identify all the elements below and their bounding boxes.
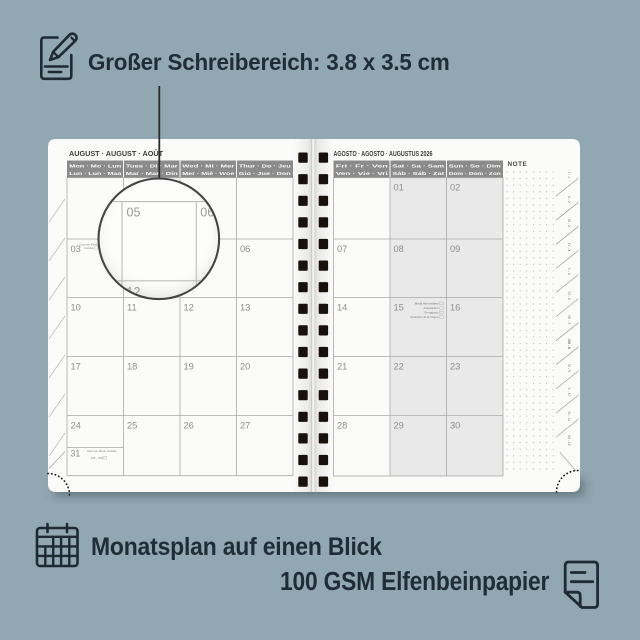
svg-text:GB - NIR: GB - NIR — [91, 456, 104, 460]
svg-text:Sáb · Sáb · Zat: Sáb · Sáb · Zat — [392, 171, 445, 176]
svg-text:III - 3: III - 3 — [567, 219, 571, 227]
svg-text:NOTE: NOTE — [508, 161, 528, 168]
svg-text:28: 28 — [337, 421, 347, 431]
svg-text:VI - 6: VI - 6 — [567, 292, 571, 300]
svg-text:Thur · Do · Jeu: Thur · Do · Jeu — [239, 164, 292, 169]
svg-text:Sat · Sa · Sam: Sat · Sa · Sam — [392, 164, 445, 169]
svg-text:VII - 7: VII - 7 — [567, 315, 571, 324]
svg-text:IX - 9: IX - 9 — [567, 364, 571, 372]
svg-text:IV - 4: IV - 4 — [567, 243, 571, 251]
svg-text:13: 13 — [240, 303, 250, 313]
svg-text:Ferragosto: Ferragosto — [425, 311, 439, 315]
svg-text:Mer · Mié · Woe: Mer · Mié · Woe — [182, 171, 235, 176]
svg-text:Mar · Mar · Din: Mar · Mar · Din — [126, 171, 179, 176]
svg-text:10: 10 — [71, 303, 81, 313]
svg-text:25: 25 — [127, 421, 137, 431]
svg-text:Mariä Himmelfahrt: Mariä Himmelfahrt — [415, 301, 439, 305]
svg-text:23: 23 — [450, 362, 460, 372]
svg-text:14: 14 — [337, 303, 347, 313]
svg-text:Wed · Mi · Mer: Wed · Mi · Mer — [182, 164, 235, 169]
svg-text:24: 24 — [71, 421, 81, 431]
svg-text:Assumption: Assumption — [423, 306, 438, 310]
svg-text:Holiday: Holiday — [84, 246, 94, 250]
svg-text:30: 30 — [450, 421, 460, 431]
svg-text:Ven · Vie · Vri: Ven · Vie · Vri — [336, 171, 388, 176]
svg-text:18: 18 — [127, 362, 137, 372]
svg-text:Lun · Lun · Maa: Lun · Lun · Maa — [69, 171, 122, 176]
svg-text:X - 10: X - 10 — [567, 387, 571, 396]
svg-text:Sun · So · Dim: Sun · So · Dim — [449, 164, 502, 169]
svg-text:XII - 12: XII - 12 — [567, 435, 571, 446]
svg-text:17: 17 — [71, 362, 81, 372]
svg-text:Tues · Di · Mar: Tues · Di · Mar — [126, 164, 179, 169]
svg-text:Dom · Dom · Zon: Dom · Dom · Zon — [449, 171, 502, 176]
svg-text:07: 07 — [337, 244, 347, 254]
svg-text:II - 2: II - 2 — [567, 196, 571, 203]
svg-text:20: 20 — [240, 362, 250, 372]
svg-text:26: 26 — [184, 421, 194, 431]
svg-text:I - 1: I - 1 — [567, 172, 571, 178]
svg-text:Summer Bank Holiday: Summer Bank Holiday — [87, 449, 117, 453]
svg-text:09: 09 — [450, 244, 460, 254]
svg-text:Gio · Jue · Don: Gio · Jue · Don — [239, 171, 292, 176]
svg-text:27: 27 — [240, 421, 250, 431]
svg-text:21: 21 — [337, 362, 347, 372]
svg-text:12: 12 — [184, 303, 194, 313]
svg-text:31: 31 — [71, 449, 81, 459]
svg-text:02: 02 — [450, 183, 460, 193]
svg-text:29: 29 — [394, 421, 404, 431]
svg-text:Mon · Mo · Lun: Mon · Mo · Lun — [69, 164, 122, 169]
svg-text:16: 16 — [450, 303, 460, 313]
svg-text:VIII - 8: VIII - 8 — [567, 339, 571, 349]
svg-text:01: 01 — [394, 183, 404, 193]
svg-text:11: 11 — [127, 303, 137, 313]
svg-text:V - 5: V - 5 — [567, 268, 571, 275]
svg-text:Fri · Fr · Ven: Fri · Fr · Ven — [336, 164, 389, 169]
svg-text:19: 19 — [184, 362, 194, 372]
svg-text:15: 15 — [394, 303, 404, 313]
svg-text:AGOSTO · AGOSTO · AUGUSTUS 202: AGOSTO · AGOSTO · AUGUSTUS 2026 — [334, 151, 433, 158]
svg-text:08: 08 — [394, 244, 404, 254]
svg-text:XI - 11: XI - 11 — [567, 411, 571, 421]
svg-text:22: 22 — [394, 362, 404, 372]
svg-text:06: 06 — [240, 244, 250, 254]
svg-text:AUGUST · AUGUST · AOÛT: AUGUST · AUGUST · AOÛT — [69, 149, 164, 158]
svg-text:Asunción de la Virgen: Asunción de la Virgen — [410, 315, 438, 319]
